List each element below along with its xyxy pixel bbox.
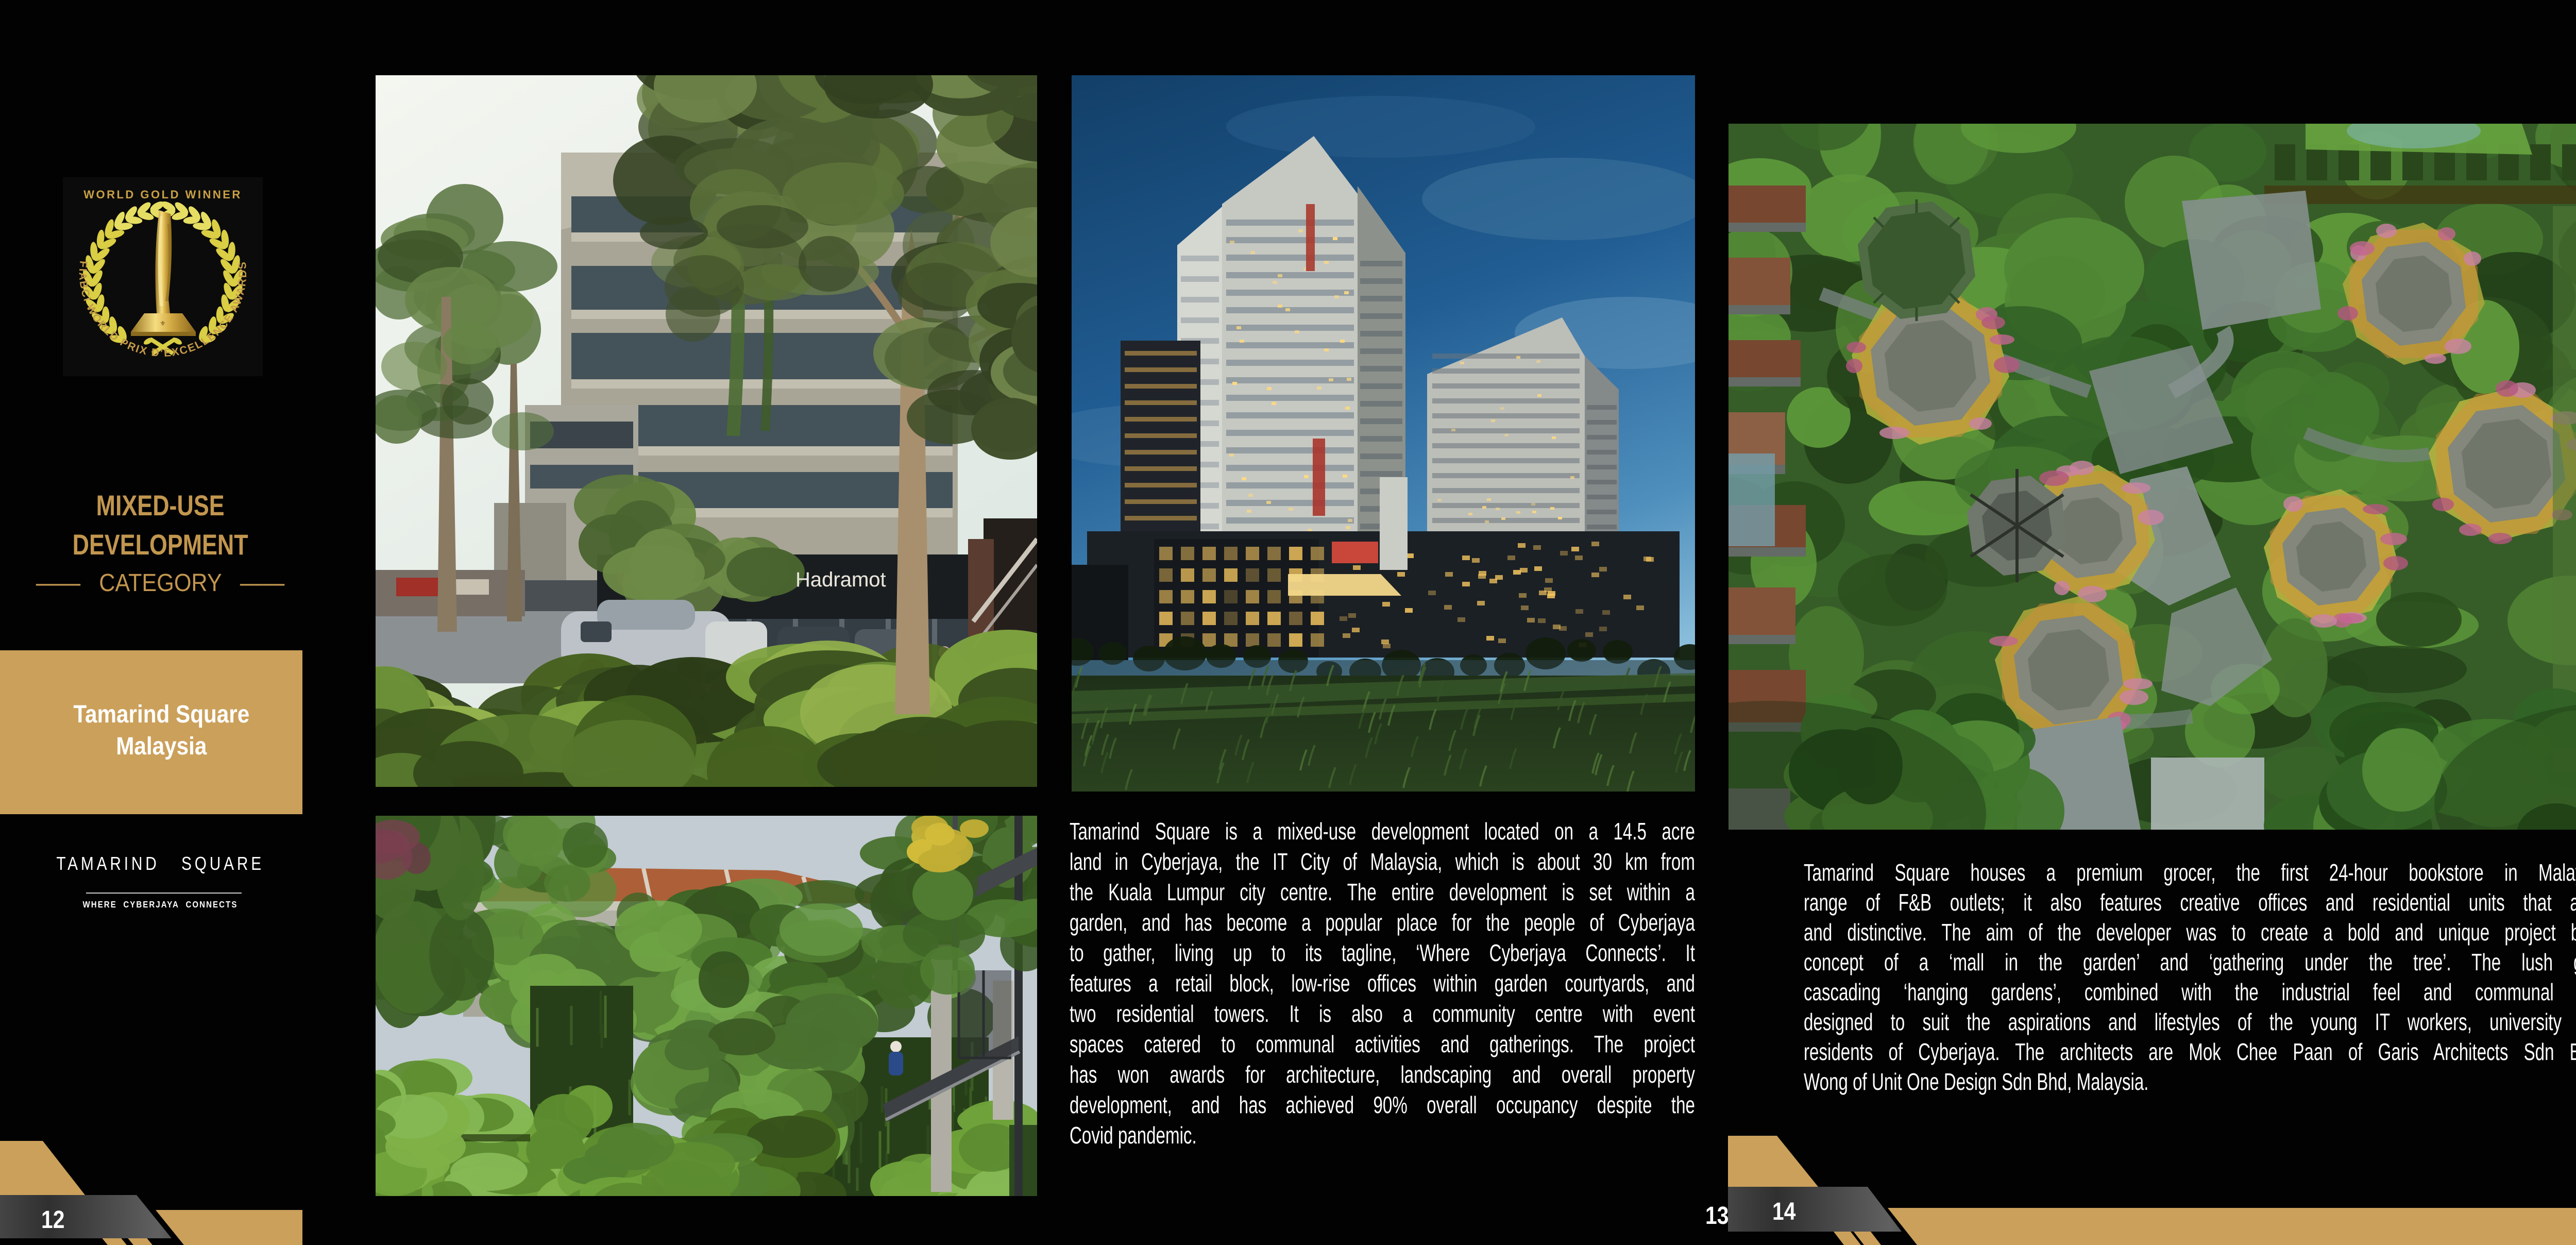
svg-text:Hadramot: Hadramot [795, 568, 886, 591]
svg-text:FIABCI WORLD PRIX D’EXCELLENCE: FIABCI WORLD PRIX D’EXCELLENCE AWARDS [77, 260, 249, 359]
